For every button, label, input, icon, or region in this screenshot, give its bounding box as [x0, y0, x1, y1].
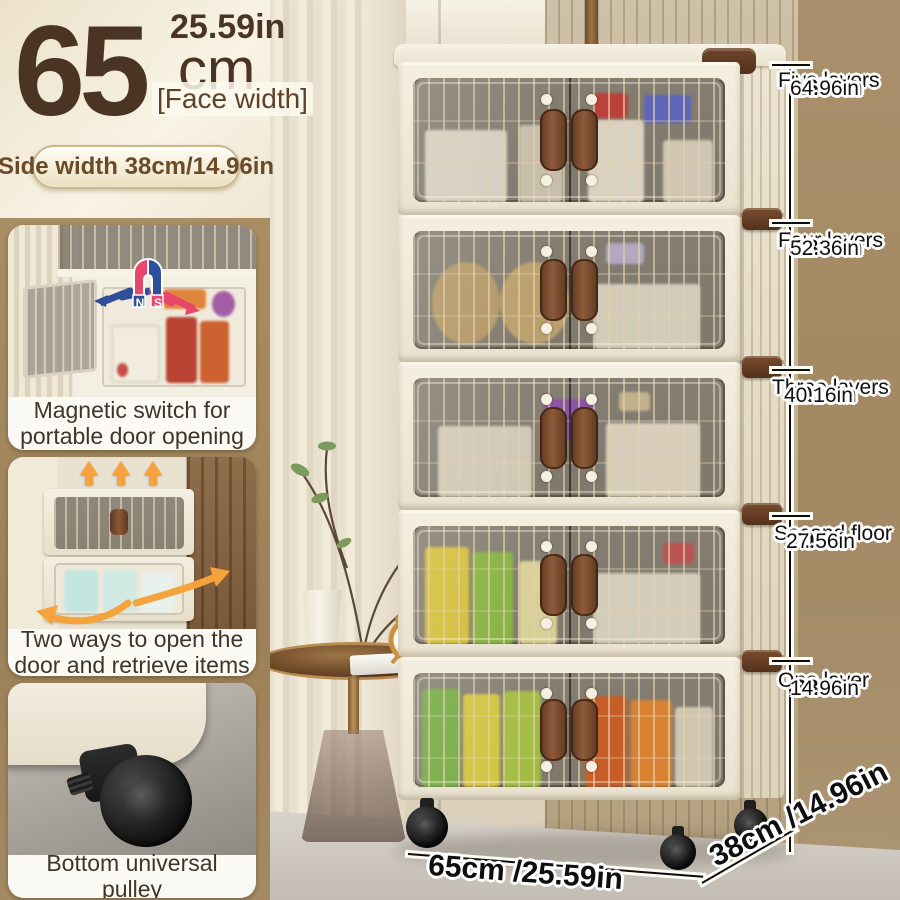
pulley-photo [8, 683, 256, 855]
cabinet-unit-3 [398, 362, 740, 510]
feature-card-pulley: Bottom universal pulley [8, 683, 256, 898]
dimension-tick [772, 515, 810, 517]
side-width-pill: Side width 38cm/14.96in [32, 145, 240, 189]
feature-caption: Magnetic switch for portable door openin… [8, 397, 256, 450]
feature-caption: Two ways to open the door and retrieve i… [8, 629, 256, 676]
magnetic-switch-photo: N S [8, 225, 256, 397]
marker-inches: 27.56in [786, 531, 855, 552]
unit-window [413, 231, 725, 349]
feature-card-two-ways: Two ways to open the door and retrieve i… [8, 457, 256, 676]
caster-wheel [660, 834, 696, 870]
unit-window [413, 526, 725, 644]
door-handle[interactable] [539, 407, 599, 469]
side-width-text: Side width 38cm/14.96in [0, 153, 274, 181]
stacked-box-top [44, 489, 194, 555]
door-handle[interactable] [539, 699, 599, 761]
face-width-value: 65 [14, 8, 144, 136]
side-fold-handle [742, 208, 782, 230]
marker-inches: 40.16in [784, 385, 853, 406]
caster-wheel-large [100, 755, 192, 847]
door-handle[interactable] [539, 109, 599, 171]
unit-window [413, 378, 725, 497]
side-fold-handle [742, 356, 782, 378]
dimension-tick [772, 660, 810, 662]
side-table-stem [348, 676, 359, 734]
up-arrow-icon [112, 461, 130, 475]
up-arrow-icon [144, 461, 162, 475]
feature-caption: Bottom universal pulley [8, 855, 256, 898]
cabinet-unit-5 [398, 62, 740, 215]
face-width-label: [Face width] [152, 82, 313, 116]
marker-inches: 52.36in [790, 238, 859, 259]
curved-arrows-icon [8, 565, 256, 635]
up-arrow-icon [80, 461, 98, 475]
marker-inches: 64.96in [790, 78, 859, 99]
feature-card-magnetic-switch: N S Magnetic switch for portable door op… [8, 225, 256, 450]
magnet-n-label: N [131, 295, 149, 311]
height-dimension-line [789, 64, 791, 852]
cabinet-unit-1 [398, 657, 740, 800]
magnet-s-label: S [149, 295, 167, 311]
two-ways-photo [8, 457, 256, 629]
door-handle[interactable] [539, 554, 599, 616]
dimension-tick [772, 222, 810, 224]
open-door [23, 279, 97, 379]
caster-wheel [406, 806, 448, 848]
product-infographic: Five layers 165cm 64.96in Four layers 13… [0, 0, 900, 900]
dimension-tick [772, 369, 810, 371]
dimension-tick [772, 64, 810, 66]
cabinet-unit-4 [398, 215, 740, 362]
cabinet-unit-2 [398, 510, 740, 657]
unit-window [413, 78, 725, 202]
marker-inches: 14.96in [790, 678, 859, 699]
tan-wall [798, 0, 900, 855]
unit-window [413, 673, 725, 787]
door-handle[interactable] [539, 259, 599, 321]
